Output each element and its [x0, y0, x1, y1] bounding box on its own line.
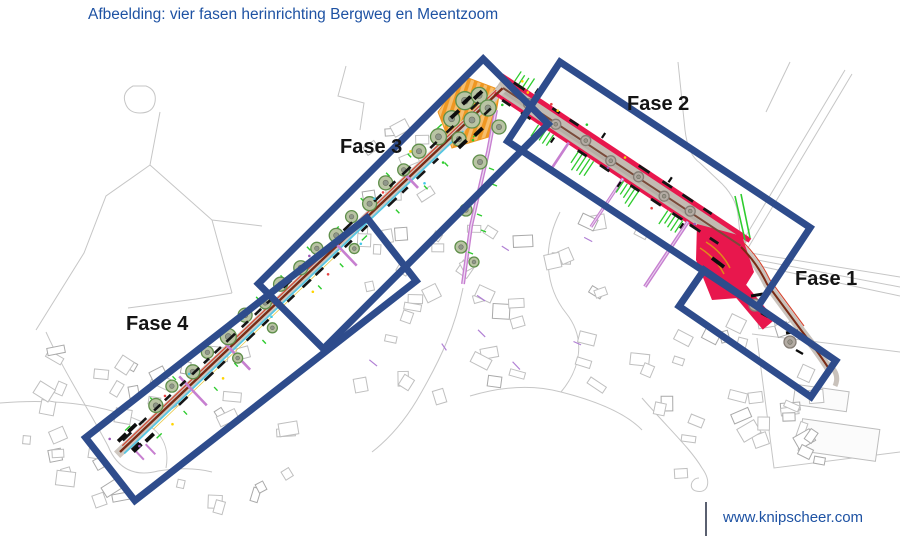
phase-label-fase-1: Fase 1: [795, 268, 857, 290]
phase-label-fase-3: Fase 3: [340, 136, 402, 158]
phase-box-fase-4: [86, 218, 417, 501]
slide-canvas: Afbeelding: vier fasen herinrichting Ber…: [0, 0, 900, 544]
phase-label-fase-4: Fase 4: [126, 313, 189, 335]
website-link[interactable]: www.knipscheer.com: [723, 509, 863, 526]
phasing-map: Fase 1 Fase 2 Fase 3 Fase 4: [0, 0, 900, 544]
phase-label-fase-2: Fase 2: [627, 93, 689, 115]
footer-divider: [705, 502, 707, 536]
